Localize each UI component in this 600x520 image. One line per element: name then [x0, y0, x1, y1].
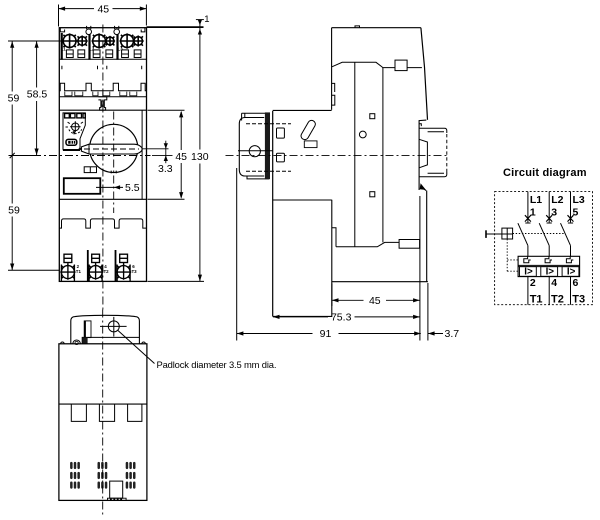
svg-text:5.5: 5.5: [125, 182, 140, 194]
svg-text:45: 45: [369, 295, 381, 307]
svg-text:6: 6: [573, 277, 579, 289]
svg-text:45: 45: [97, 3, 109, 15]
svg-text:2: 2: [530, 277, 536, 289]
svg-text:T1: T1: [76, 269, 82, 274]
svg-text:Circuit diagram: Circuit diagram: [503, 167, 587, 179]
svg-text:3.3: 3.3: [158, 163, 173, 175]
svg-text:L1: L1: [530, 194, 542, 206]
svg-text:T3: T3: [572, 293, 585, 305]
svg-text:T2: T2: [104, 269, 110, 274]
svg-text:59: 59: [8, 204, 20, 216]
svg-text:91: 91: [320, 328, 332, 340]
svg-text:I>: I>: [567, 267, 576, 278]
svg-text:L1: L1: [61, 46, 67, 51]
svg-text:4: 4: [551, 277, 557, 289]
svg-text:75.3: 75.3: [331, 311, 352, 323]
svg-text:I>: I>: [546, 267, 555, 278]
svg-text:1: 1: [530, 207, 536, 219]
svg-text:T1: T1: [530, 293, 543, 305]
svg-text:L3: L3: [118, 46, 124, 51]
svg-text:Padlock diameter 3.5 mm dia.: Padlock diameter 3.5 mm dia.: [157, 359, 277, 370]
svg-text:45: 45: [175, 151, 187, 163]
svg-text:3.7: 3.7: [445, 328, 460, 340]
svg-text:3: 3: [551, 207, 557, 219]
svg-text:130: 130: [191, 151, 209, 163]
svg-text:L2: L2: [89, 46, 95, 51]
svg-text:5: 5: [573, 207, 579, 219]
svg-text:I>: I>: [524, 267, 533, 278]
svg-text:L3: L3: [573, 194, 585, 206]
svg-text:59: 59: [8, 93, 20, 105]
svg-text:T3: T3: [132, 269, 138, 274]
svg-text:L2: L2: [551, 194, 563, 206]
svg-text:58.5: 58.5: [27, 89, 48, 101]
svg-text:T2: T2: [551, 293, 564, 305]
svg-text:1: 1: [204, 14, 209, 25]
